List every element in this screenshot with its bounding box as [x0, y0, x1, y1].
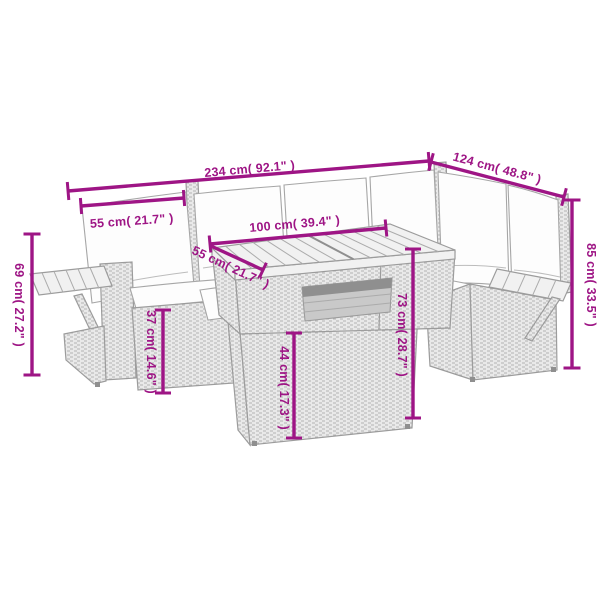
- left-module-side: [64, 326, 106, 384]
- dimension-label: 73 cm( 28.7" ): [395, 293, 409, 377]
- dimension-label: 44 cm( 17.3" ): [277, 346, 291, 430]
- dimension-label: 85 cm( 33.5" ): [584, 243, 598, 327]
- dimension-label: 37 cm( 14.6" ): [144, 310, 158, 394]
- table-illustration: [212, 224, 455, 446]
- dimension-label: 69 cm( 27.2" ): [12, 263, 26, 347]
- product-dimension-diagram: 234 cm( 92.1" ) 124 cm( 48.8" ) 55 cm( 2…: [0, 0, 600, 600]
- diagram-canvas: 234 cm( 92.1" ) 124 cm( 48.8" ) 55 cm( 2…: [0, 0, 600, 600]
- dimension-armrest-height: 69 cm( 27.2" ): [12, 234, 41, 375]
- right-module-front: [470, 284, 557, 380]
